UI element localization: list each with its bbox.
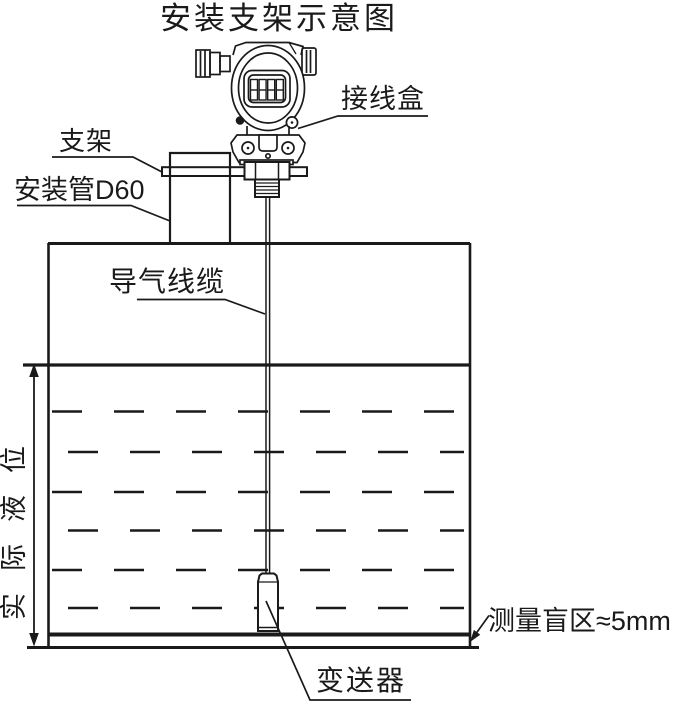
label-mounting-pipe: 安装管D60 xyxy=(14,176,145,206)
threaded-stub-icon xyxy=(255,180,279,198)
lcd-display xyxy=(244,71,290,108)
leader-mounting-pipe xyxy=(17,206,170,222)
leader-bracket xyxy=(52,157,162,172)
leader-blind-zone xyxy=(470,616,489,643)
junction-box-drawing xyxy=(231,135,305,165)
side-plug-icon xyxy=(302,48,316,75)
arrow-down-left-icon xyxy=(470,630,480,642)
screw-icon xyxy=(236,116,245,125)
label-bracket: 支架 xyxy=(59,127,113,156)
hex-nut-icon xyxy=(245,162,290,180)
label-air-cable: 导气线缆 xyxy=(109,267,225,298)
label-junction-box: 接线盒 xyxy=(341,85,425,115)
tank-outline xyxy=(27,243,479,648)
label-actual-level: 实际液位 xyxy=(0,392,32,652)
label-transmitter: 变送器 xyxy=(316,666,406,697)
leader-air-cable xyxy=(137,300,265,315)
air-cable-drawing xyxy=(266,197,270,574)
transmitter-head-drawing xyxy=(196,43,316,198)
cable-gland-icon xyxy=(196,50,230,77)
page-title: 安装支架示意图 xyxy=(160,2,398,36)
label-blind-zone: 测量盲区≈5mm xyxy=(488,607,671,637)
diagram-page: 安装支架示意图 接线盒 支架 安装管D60 导气线缆 实际液位 测量盲区≈5mm… xyxy=(0,0,700,708)
leader-junction-box xyxy=(298,116,428,129)
